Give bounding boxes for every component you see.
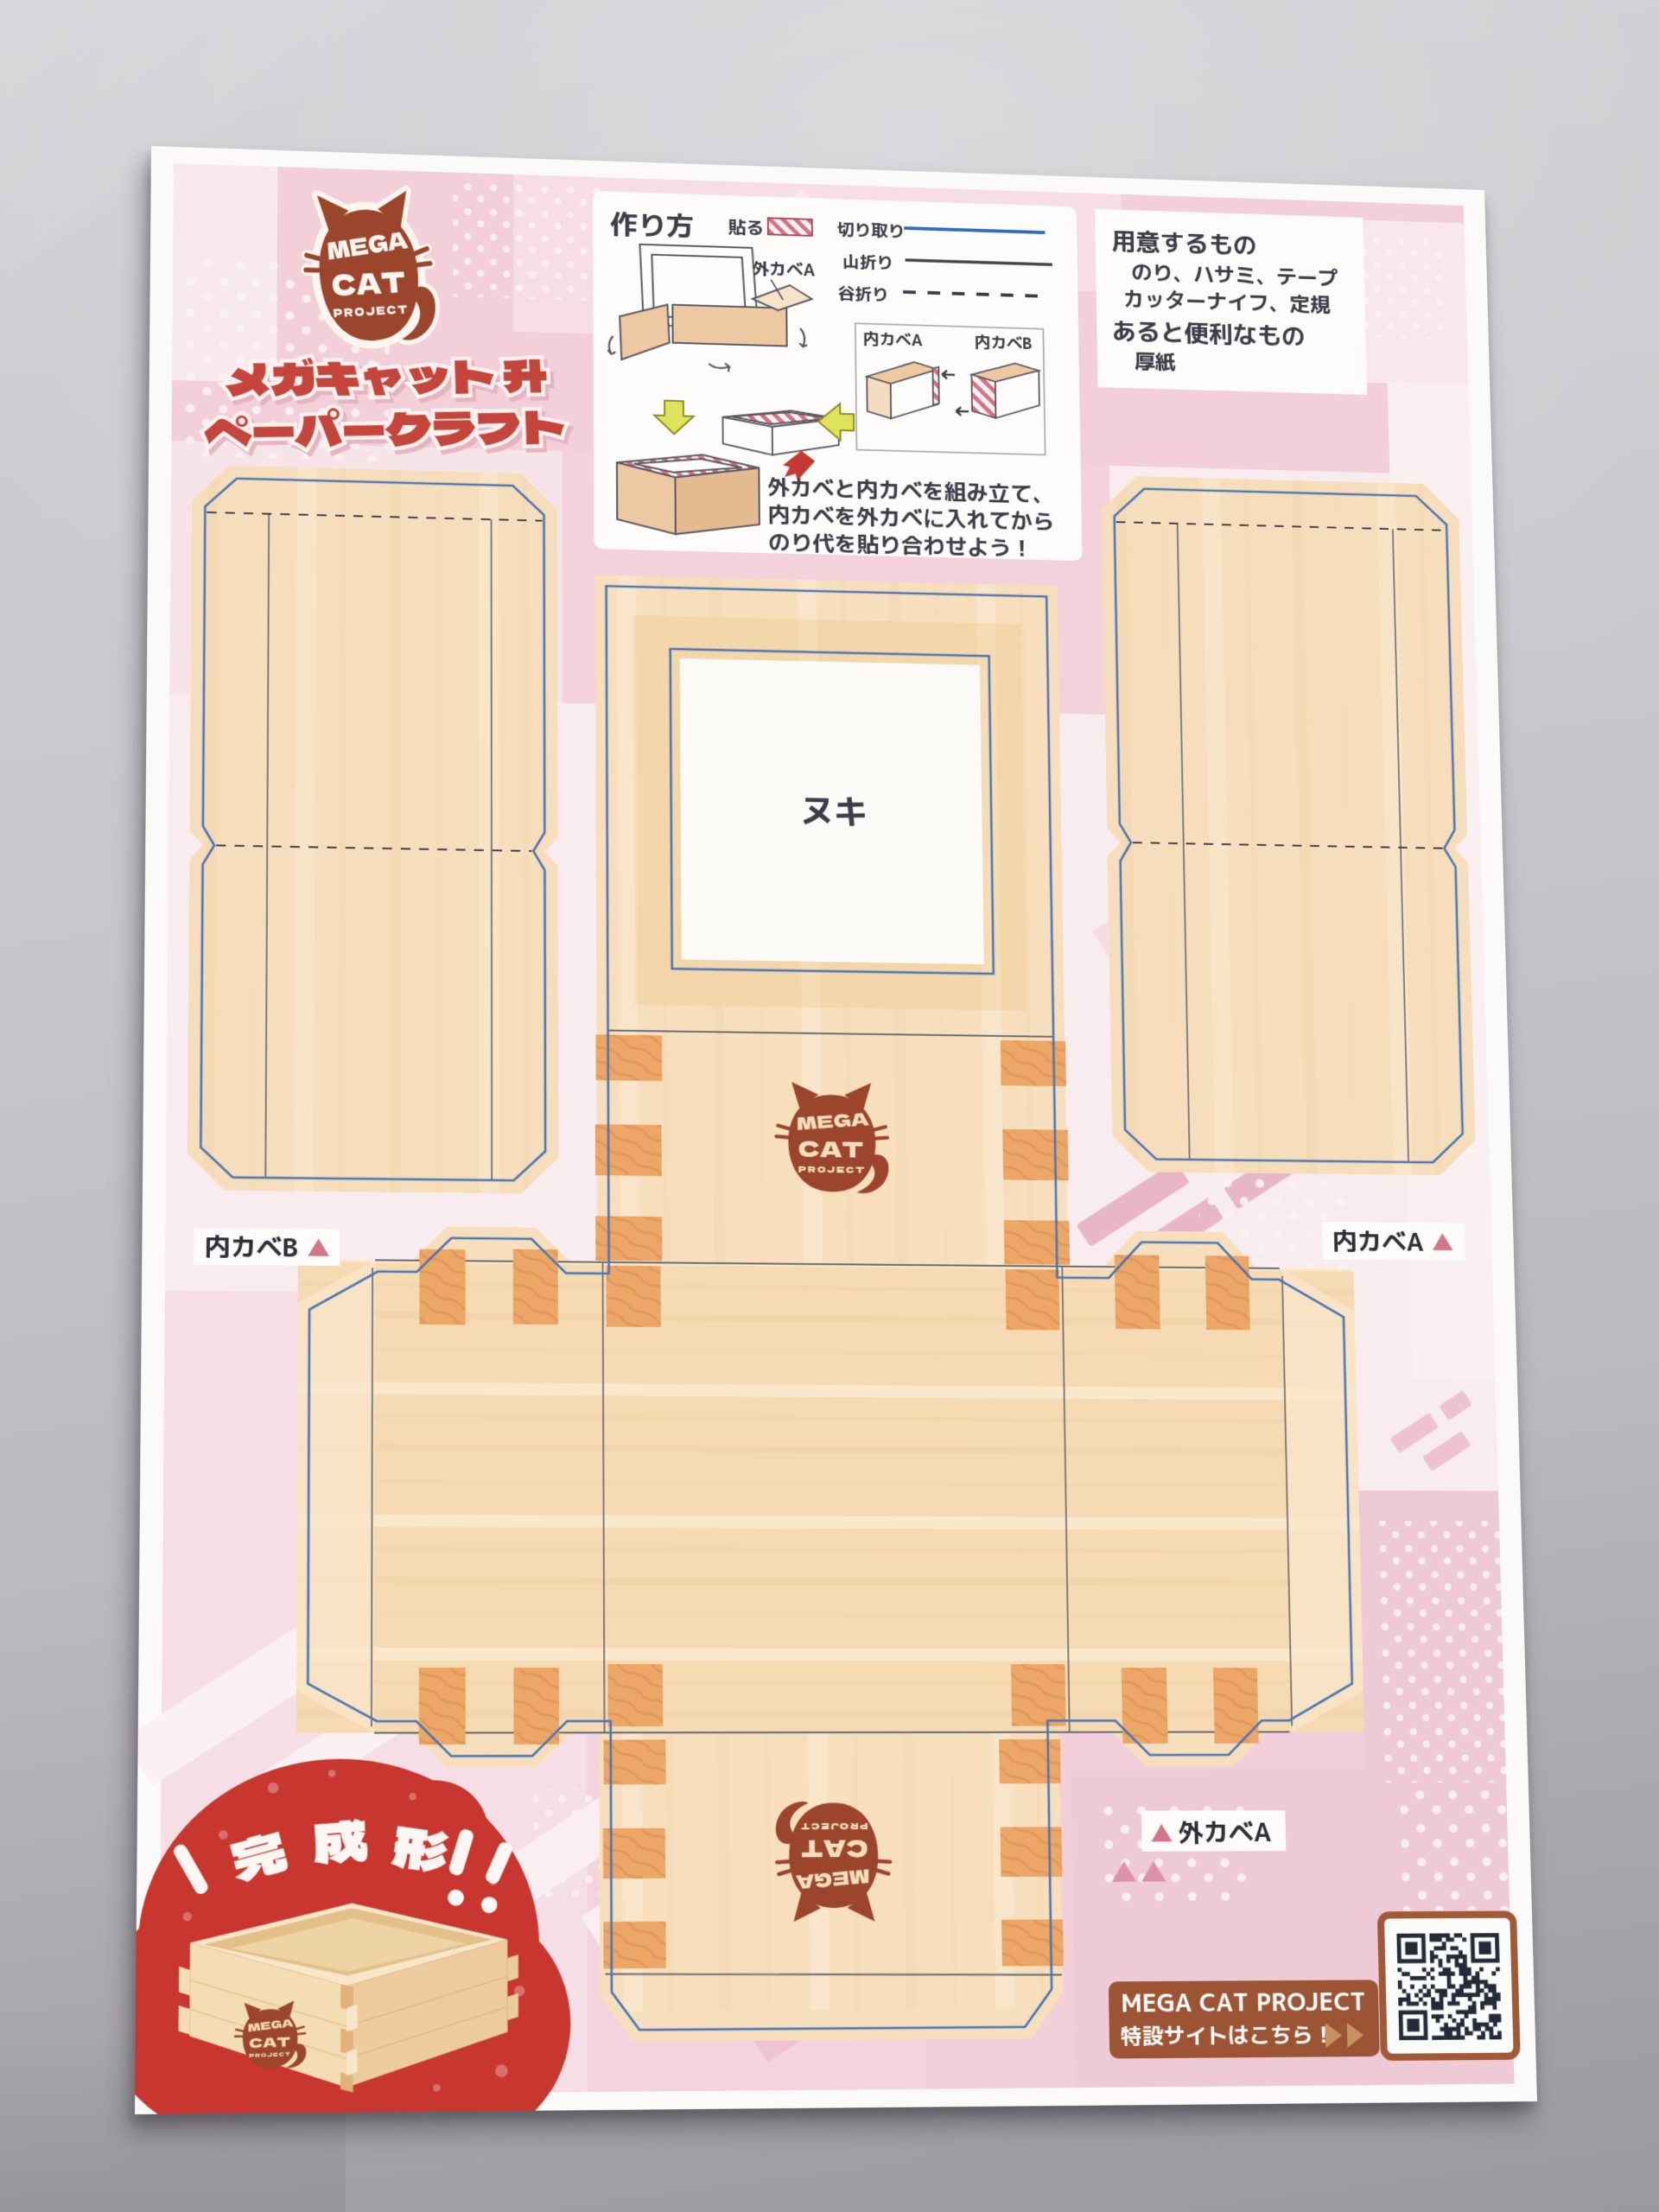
svg-text:用意するもの: 用意するもの bbox=[1112, 225, 1257, 263]
svg-text:貼る: 貼る bbox=[728, 215, 764, 240]
svg-text:のり代を貼り合わせよう！: のり代を貼り合わせよう！ bbox=[768, 528, 1033, 564]
svg-text:作り方: 作り方 bbox=[610, 205, 695, 245]
svg-text:厚紙: 厚紙 bbox=[1134, 346, 1176, 376]
svg-text:切り取り: 切り取り bbox=[837, 219, 905, 244]
svg-text:谷折り: 谷折り bbox=[838, 283, 889, 307]
svg-text:特設サイトはこちら！: 特設サイトはこちら！ bbox=[1121, 2019, 1335, 2052]
svg-text:内カベA: 内カベA bbox=[863, 327, 923, 351]
svg-text:内カベB: 内カベB bbox=[205, 1229, 299, 1265]
svg-text:MEGA CAT PROJECT: MEGA CAT PROJECT bbox=[1121, 1984, 1367, 2020]
svg-text:ペーパークラフト: ペーパークラフト bbox=[202, 393, 567, 462]
svg-text:形: 形 bbox=[388, 1804, 454, 1891]
svg-text:完: 完 bbox=[219, 1808, 295, 1901]
svg-text:内カベA: 内カベA bbox=[1332, 1224, 1425, 1259]
svg-text:山折り: 山折り bbox=[842, 251, 893, 275]
svg-text:外カベA: 外カベA bbox=[1178, 1815, 1272, 1851]
svg-text:成: 成 bbox=[310, 1798, 371, 1882]
svg-text:内カベB: 内カベB bbox=[975, 331, 1033, 354]
svg-text:外カベA: 外カベA bbox=[753, 257, 816, 282]
svg-text:CAT: CAT bbox=[330, 260, 408, 305]
svg-text:CAT: CAT bbox=[249, 2032, 291, 2052]
